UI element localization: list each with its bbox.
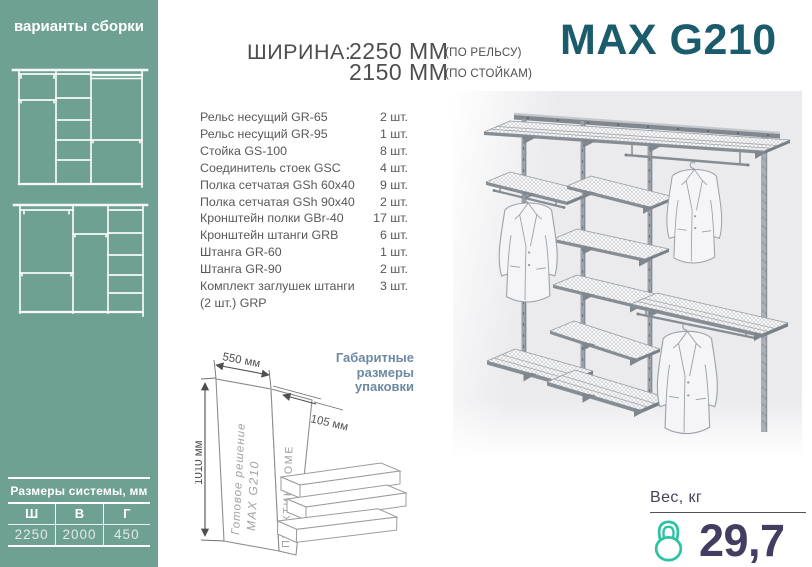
part-name: Комплект заглушек штанги (2 шт.) GRP [200,278,364,312]
part-row: Полка сетчатая GSh 90x402 шт. [200,194,408,211]
package-height-dim: 1010 мм [195,440,205,485]
part-qty: 9 шт. [380,177,408,194]
system-size-table: Размеры системы, мм Ш В Г 2250 2000 450 [8,477,150,547]
part-qty: 4 шт. [380,160,408,177]
wardrobe-illustration [450,90,812,535]
parts-list: Рельс несущий GR-652 шт. Рельс несущий G… [200,109,408,312]
part-qty: 1 шт. [380,244,408,261]
part-row: Штанга GR-601 шт. [200,244,408,261]
package-depth-dim: 105 мм [309,413,349,433]
size-val-width: 2250 [8,525,55,545]
kettlebell-icon [650,520,687,562]
weight-divider [650,512,806,513]
size-val-depth: 450 [103,525,150,545]
part-qty: 6 шт. [380,227,408,244]
width-label: ШИРИНА: [247,40,351,65]
sidebar: варианты сборки [0,0,158,567]
weight-block: Вес, кг 29,7 [650,489,806,562]
part-row: Кронштейн штанги GRB6 шт. [200,227,408,244]
size-col-depth: Г [103,504,150,524]
part-qty: 2 шт. [380,261,408,278]
part-qty: 1 шт. [380,126,408,143]
product-sheet: варианты сборки [0,0,812,567]
assembly-option-1-diagram [10,60,150,192]
table-rule [8,545,150,547]
part-name: Штанга GR-60 [200,244,282,261]
part-qty: 17 шт. [373,210,408,227]
part-row: Рельс несущий GR-951 шт. [200,126,408,143]
part-qty: 2 шт. [380,194,408,211]
size-val-height: 2000 [55,525,102,545]
weight-value: 29,7 [699,520,785,562]
part-row: Кронштейн полки GBr-4017 шт. [200,210,408,227]
jacket-top-right [667,162,722,263]
size-table-header-row: Ш В Г [8,504,150,524]
post-width-note: (ПО СТОЙКАМ) [445,68,532,80]
part-row: Штанга GR-902 шт. [200,261,408,278]
size-table-title: Размеры системы, мм [8,479,150,502]
part-name: Кронштейн полки GBr-40 [200,210,344,227]
post-width-value: 2150 ММ [349,59,448,86]
part-qty: 2 шт. [380,109,408,126]
part-name: Стойка GS-100 [200,143,287,160]
part-name: Рельс несущий GR-95 [200,126,328,143]
jacket-left [499,195,557,302]
size-col-width: Ш [8,504,55,524]
part-row: Соединитель стоек GSC4 шт. [200,160,408,177]
part-row: Комплект заглушек штанги (2 шт.) GRP3 шт… [200,278,408,312]
part-name: Полка сетчатая GSh 60x40 [200,177,355,194]
weight-label: Вес, кг [650,489,806,507]
part-name: Штанга GR-90 [200,261,282,278]
jacket-bottom-right [657,323,717,433]
part-row: Стойка GS-1008 шт. [200,143,408,160]
part-name: Кронштейн штанги GRB [200,227,338,244]
part-qty: 8 шт. [380,143,408,160]
package-label: Габаритные размеры упаковки [320,351,414,395]
size-table-values-row: 2250 2000 450 [8,525,150,545]
part-row: Полка сетчатая GSh 60x409 шт. [200,177,408,194]
part-name: Соединитель стоек GSC [200,160,341,177]
rail-width-note: (ПО РЕЛЬСУ) [445,47,522,59]
part-name: Полка сетчатая GSh 90x40 [200,194,355,211]
size-col-height: В [55,504,102,524]
part-row: Рельс несущий GR-652 шт. [200,109,408,126]
wall-rail [761,135,767,432]
part-qty: 3 шт. [380,278,408,295]
sidebar-title: варианты сборки [0,18,158,36]
product-logo: MAX G210 [560,16,795,65]
part-name: Рельс несущий GR-65 [200,109,328,126]
assembly-option-2-diagram [10,198,150,322]
